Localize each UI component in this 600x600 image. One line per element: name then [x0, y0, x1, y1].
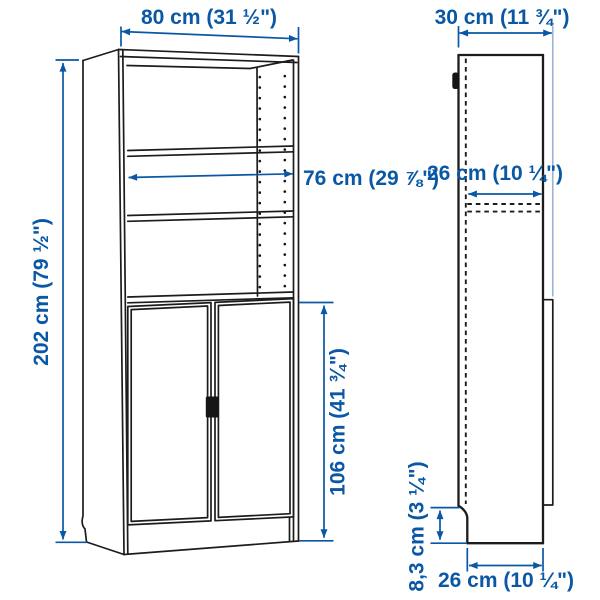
- door-handle: [206, 397, 219, 418]
- wall-anchor-fitting: [452, 73, 459, 90]
- dim-label-plinth-height: 8,3 cm (3 ¼"): [406, 461, 429, 591]
- dim-label-floor-depth: 26 cm (10 ¼"): [438, 569, 574, 592]
- product-dimension-diagram: 80 cm (31 ½") 202 cm (79 ½") 76 cm (29 ⅞…: [0, 0, 600, 600]
- dim-label-height: 202 cm (79 ½"): [30, 218, 53, 366]
- dim-label-depth: 30 cm (11 ¾"): [435, 6, 570, 29]
- dim-label-inner-width: 76 cm (29 ⅞"): [303, 167, 439, 190]
- diagram-svg: 80 cm (31 ½") 202 cm (79 ½") 76 cm (29 ⅞…: [0, 0, 600, 600]
- dim-label-shelf-depth: 26 cm (10 ¼"): [427, 162, 563, 185]
- interior-depth-line: [257, 68, 258, 296]
- dim-label-width: 80 cm (31 ½"): [141, 6, 277, 29]
- dim-label-door-height: 106 cm (41 ¾"): [327, 348, 350, 496]
- background: [0, 0, 600, 600]
